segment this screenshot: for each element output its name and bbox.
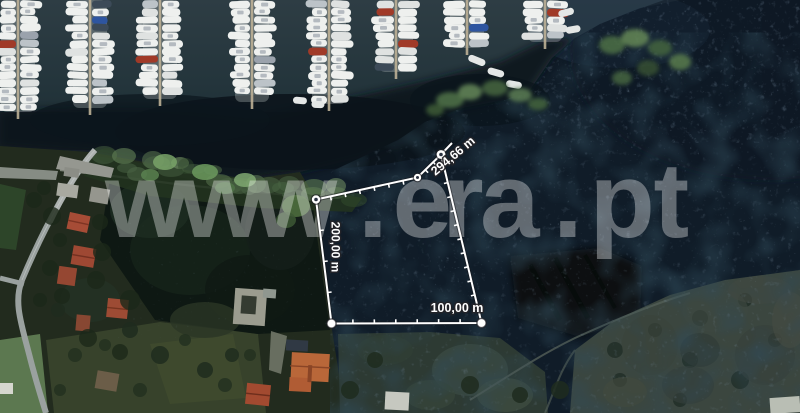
svg-text:100,00 m: 100,00 m: [431, 301, 484, 315]
svg-text:www.era.pt: www.era.pt: [104, 140, 689, 260]
svg-text:200,00 m: 200,00 m: [329, 222, 343, 273]
